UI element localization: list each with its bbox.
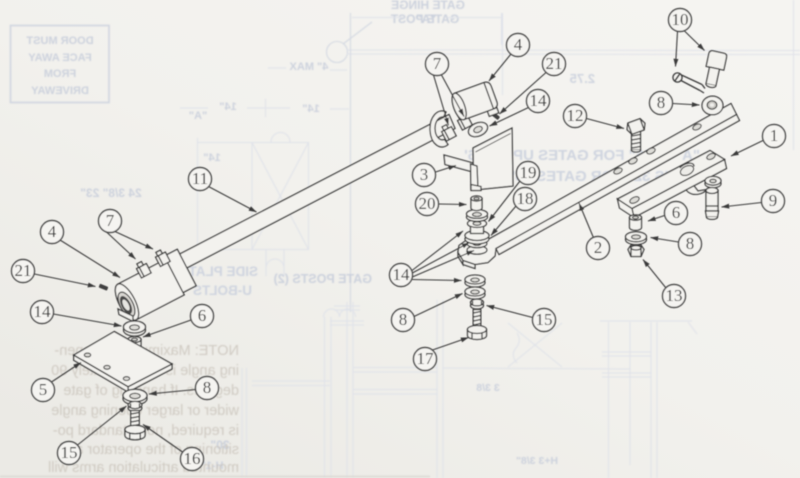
svg-text:18: 18 [517,189,534,208]
svg-text:24 3/8" 23": 24 3/8" 23" [80,186,141,200]
svg-text:14: 14 [34,302,52,321]
svg-text:10: 10 [672,10,689,29]
svg-text:2.75: 2.75 [570,71,595,86]
svg-text:14: 14 [530,91,548,110]
svg-text:8: 8 [686,234,695,253]
svg-text:3: 3 [420,165,429,184]
svg-text:9: 9 [769,191,778,210]
svg-text:8: 8 [399,310,408,329]
svg-text:3 3/8: 3 3/8 [476,382,500,394]
svg-text:6: 6 [198,306,207,325]
svg-text:GATE POSTS (2): GATE POSTS (2) [274,272,372,286]
svg-text:14": 14" [219,101,236,113]
svg-text:1: 1 [770,126,779,145]
svg-text:U-BOLTS: U-BOLTS [193,283,252,298]
svg-text:"A": "A" [189,110,207,122]
svg-text:14: 14 [393,265,411,284]
svg-text:8: 8 [657,93,666,112]
svg-text:11: 11 [192,169,208,188]
svg-text:"A": "A" [416,12,436,26]
svg-text:13: 13 [666,286,683,305]
svg-text:4: 4 [514,35,523,54]
svg-text:21: 21 [546,54,563,73]
svg-text:4: 4 [48,222,57,241]
svg-text:15: 15 [536,310,553,329]
svg-text:H+3 3/8": H+3 3/8" [516,455,558,467]
svg-text:21: 21 [15,261,32,280]
svg-text:19: 19 [520,163,537,182]
svg-text:12: 12 [567,106,584,125]
svg-text:DRIVEWAY: DRIVEWAY [31,85,89,97]
svg-text:wider or larger opening angle: wider or larger opening angle [51,403,240,419]
svg-text:GATE HINGE: GATE HINGE [391,0,465,12]
svg-text:2: 2 [594,238,603,257]
svg-text:14": 14" [302,103,319,115]
svg-text:14": 14" [203,152,220,164]
svg-text:17: 17 [417,349,435,368]
svg-text:15: 15 [61,443,78,462]
svg-text:6: 6 [672,203,681,222]
svg-text:16: 16 [184,449,201,468]
svg-text:4" MAX: 4" MAX [289,61,328,73]
svg-text:is required, non-standard po-: is required, non-standard po- [53,423,239,439]
svg-text:20: 20 [419,194,436,213]
svg-text:7: 7 [106,211,115,230]
svg-text:7: 7 [433,54,442,73]
svg-text:5: 5 [39,380,48,399]
svg-text:DOOR MUST: DOOR MUST [26,35,94,47]
svg-text:FACE AWAY: FACE AWAY [28,52,92,64]
svg-text:8: 8 [203,378,212,397]
svg-text:FROM: FROM [44,68,76,80]
svg-text:sitioning of the operator and: sitioning of the operator and [59,442,239,458]
